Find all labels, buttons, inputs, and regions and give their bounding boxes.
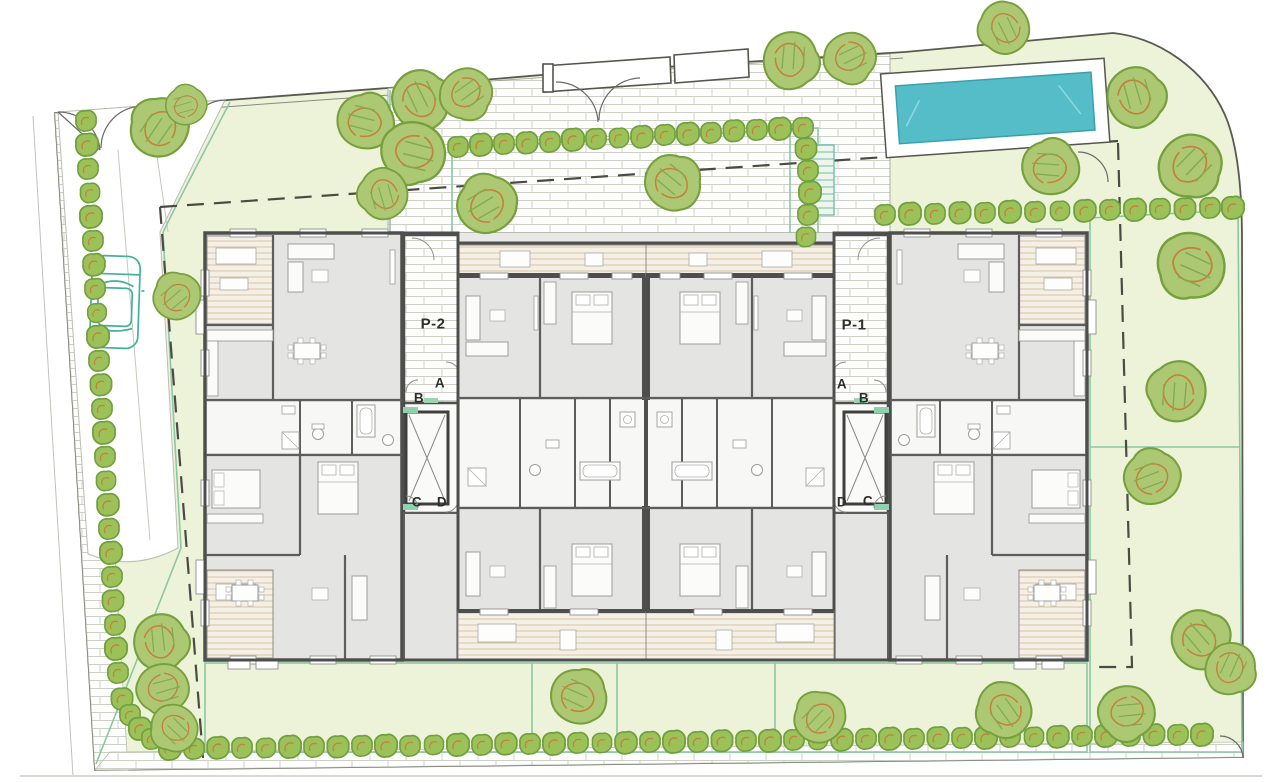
p1-door-a-label: A [837,377,847,392]
p2-door-b-label: B [414,391,424,406]
core-p2-label: P-2 [421,316,446,333]
p1-door-c-label: C [863,494,873,509]
apartment-wing [196,229,402,669]
central-apartments [458,243,647,660]
p1-door-d-label: D [837,495,847,510]
p1-door-b-label: B [859,391,869,406]
site-plan-page: P-2 P-1 A B C D A B D C [0,0,1280,782]
site-plan-drawing [0,0,1280,782]
p2-door-c-label: C [412,495,422,510]
core-p1-label: P-1 [842,317,867,334]
gate-post [543,64,553,92]
pool-area [881,58,1110,157]
building [196,229,1096,669]
p2-door-a-label: A [435,376,445,391]
p2-door-d-label: D [437,495,447,510]
